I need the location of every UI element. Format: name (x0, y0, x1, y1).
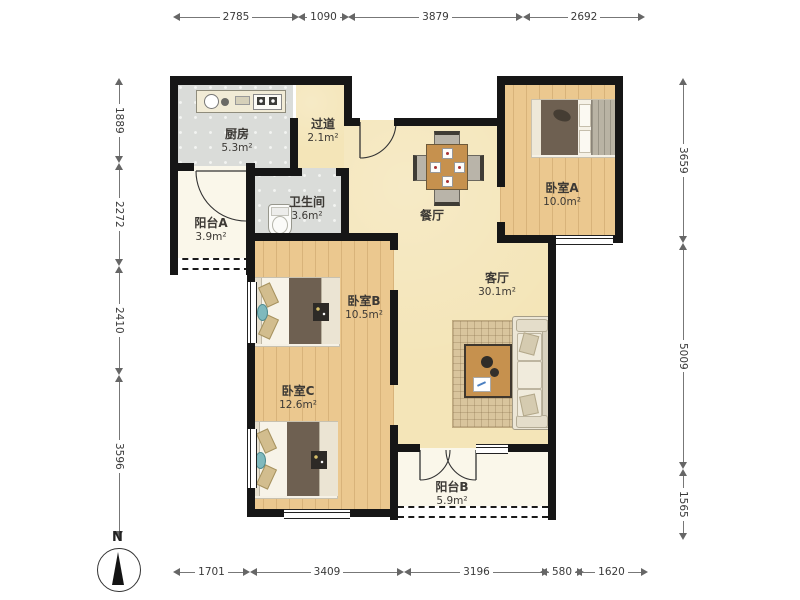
wall-bedroom-a-top (497, 76, 623, 85)
room-area: 3.9m² (194, 231, 227, 244)
room-area: 10.5m² (345, 309, 383, 322)
dimension-value: 3196 (460, 566, 493, 578)
wall-balcony-b-east (548, 444, 556, 520)
dimension-segment: 2410 (112, 266, 126, 375)
window-bedroom-b-west (247, 282, 257, 343)
dimension-segment: 1565 (676, 469, 690, 540)
label-balcony-b: 阳台B 5.9m² (435, 480, 468, 508)
dimension-row-top: 2785 1090 3879 2692 (173, 10, 645, 24)
label-kitchen: 厨房 5.3m² (221, 127, 252, 155)
dimension-value: 3596 (113, 440, 125, 473)
dimension-value: 2272 (113, 198, 125, 231)
wall-bedrooms-east-c (390, 425, 398, 520)
dimension-column-right: 3659 5009 1565 (676, 78, 690, 540)
dimension-value: 580 (549, 566, 575, 578)
dimension-segment: 3879 (348, 10, 523, 24)
balcony-a-open-edge (172, 258, 250, 270)
wall-kitchen-south (170, 163, 194, 171)
wall-bedroom-a-east (615, 76, 623, 243)
wall-living-east (548, 243, 556, 452)
room-area: 30.1m² (478, 286, 516, 299)
window-bedroom-c-south (284, 509, 350, 519)
dimension-value: 1565 (677, 488, 689, 521)
label-bedroom-a: 卧室A 10.0m² (543, 181, 581, 209)
floor-plan: 厨房 5.3m² 过道 2.1m² 卫生间 3.6m² 阳台A 3.9m² 卧室… (0, 0, 800, 600)
wall-bedrooms-east-b (390, 290, 398, 385)
wall-bedroom-b-north (250, 233, 398, 241)
wall-bathroom-east (341, 168, 349, 238)
dimension-value: 3659 (677, 144, 689, 177)
dimension-segment: 2272 (112, 163, 126, 266)
dimension-value: 2692 (568, 11, 601, 23)
dimension-value: 3879 (419, 11, 452, 23)
dimension-value: 2410 (113, 304, 125, 337)
room-name: 厨房 (221, 127, 252, 142)
dimension-row-bottom: 1701 3409 3196 580 1620 (173, 565, 648, 579)
label-bathroom: 卫生间 3.6m² (289, 195, 325, 223)
wall-south-right (350, 509, 398, 517)
room-name: 客厅 (478, 271, 516, 286)
dimension-segment: 3596 (112, 375, 126, 538)
dimension-segment: 2785 (173, 10, 299, 24)
window-bedroom-c-west (247, 429, 257, 488)
balcony-b-door-arc-left (420, 450, 450, 480)
room-name: 阳台A (194, 216, 227, 231)
dimension-column-left: 1889 2272 2410 3596 (112, 78, 126, 538)
dimension-value: 3409 (311, 566, 344, 578)
wall-bedrooms-west-b (247, 343, 255, 429)
wall-kitchen-hall-divider (290, 118, 298, 171)
window-bedroom-a-south (556, 235, 613, 245)
wall-top-main (170, 76, 352, 85)
wall-dining-top-left (344, 118, 360, 126)
room-name: 餐厅 (420, 209, 444, 224)
balcony-b-door-arc-right (446, 450, 476, 480)
dimension-value: 1620 (595, 566, 628, 578)
label-bedroom-b: 卧室B 10.5m² (345, 294, 383, 322)
dimension-value: 1701 (195, 566, 228, 578)
dimension-segment: 3659 (676, 78, 690, 243)
room-area: 12.6m² (279, 399, 317, 412)
dimension-segment: 3409 (250, 565, 404, 579)
room-name: 过道 (307, 117, 338, 132)
window-living-south (476, 444, 508, 454)
wall-bedroom-a-west-upper (497, 76, 505, 187)
wall-balcony-a-east (246, 163, 255, 275)
dimension-value: 1889 (113, 104, 125, 137)
room-area: 2.1m² (307, 132, 338, 145)
dimension-value: 1090 (307, 11, 340, 23)
wall-bedrooms-west-a (247, 266, 255, 282)
entrance-door-arc (360, 122, 396, 158)
balcony-a-door-arc (196, 171, 246, 221)
room-name: 卧室C (279, 384, 317, 399)
dimension-segment: 580 (549, 565, 575, 579)
dimension-value: 5009 (677, 340, 689, 373)
room-name: 阳台B (435, 480, 468, 495)
label-hallway: 过道 2.1m² (307, 117, 338, 145)
label-living: 客厅 30.1m² (478, 271, 516, 299)
compass-north-label: N (112, 530, 123, 545)
room-area: 5.3m² (221, 142, 252, 155)
wall-left-exterior (170, 76, 178, 275)
room-area: 3.6m² (289, 210, 325, 223)
dimension-segment: 2692 (523, 10, 645, 24)
room-name: 卧室B (345, 294, 383, 309)
room-name: 卫生间 (289, 195, 325, 210)
dimension-segment: 1701 (173, 565, 250, 579)
balcony-b-open-edge (398, 506, 548, 518)
label-balcony-a: 阳台A 3.9m² (194, 216, 227, 244)
wall-dining-top-right (394, 118, 504, 126)
dimension-segment: 5009 (676, 243, 690, 469)
compass-needle-icon (112, 552, 124, 585)
room-area: 10.0m² (543, 196, 581, 209)
room-name: 卧室A (543, 181, 581, 196)
dimension-value: 2785 (220, 11, 253, 23)
dimension-segment: 1090 (299, 10, 348, 24)
dimension-segment: 3196 (404, 565, 549, 579)
dimension-segment: 1620 (575, 565, 648, 579)
room-area: 5.9m² (435, 495, 468, 508)
wall-south-left (247, 509, 284, 517)
dimension-segment: 1889 (112, 78, 126, 163)
label-dining: 餐厅 (420, 209, 444, 224)
label-bedroom-c: 卧室C 12.6m² (279, 384, 317, 412)
